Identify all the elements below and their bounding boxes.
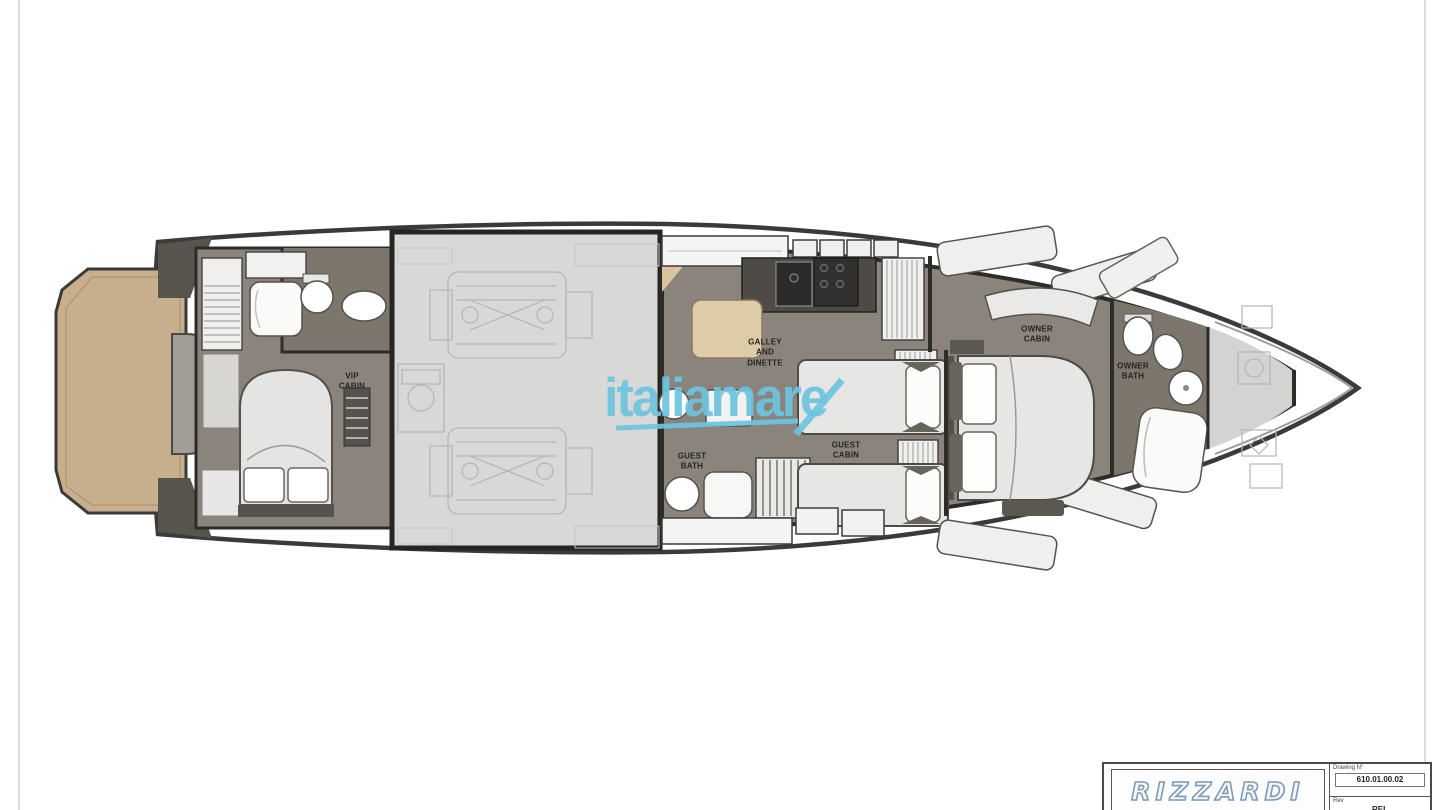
brand-logo: RIZZARDI	[1131, 777, 1304, 806]
titleblock-fields: Drawing N° 610.01.00.02 Rev REL	[1329, 764, 1430, 810]
room-label-owner-bath: OWNER BATH	[1117, 362, 1149, 383]
drawing-number-label: Drawing N°	[1333, 765, 1363, 771]
room-label-owner-cabin: OWNER CABIN	[1021, 325, 1053, 346]
revision-value: REL	[1330, 805, 1430, 810]
revision-label: Rev	[1333, 798, 1344, 804]
titleblock: RIZZARDI Drawing N° 610.01.00.02 Rev REL	[1102, 762, 1432, 810]
brand-box: RIZZARDI	[1111, 769, 1325, 810]
drawing-number-value: 610.01.00.02	[1335, 773, 1425, 787]
watermark-swoosh-icon	[598, 372, 858, 444]
page: VIP CABIN GALLEY AND DINETTE GUEST BATH …	[0, 0, 1440, 810]
room-label-vip-cabin: VIP CABIN	[339, 372, 365, 393]
room-label-guest-bath: GUEST BATH	[678, 452, 707, 473]
room-label-galley: GALLEY AND DINETTE	[747, 337, 783, 368]
swim-platform	[56, 238, 212, 538]
drawing-number-row: Drawing N° 610.01.00.02	[1330, 764, 1430, 797]
revision-row: Rev REL	[1330, 797, 1430, 810]
